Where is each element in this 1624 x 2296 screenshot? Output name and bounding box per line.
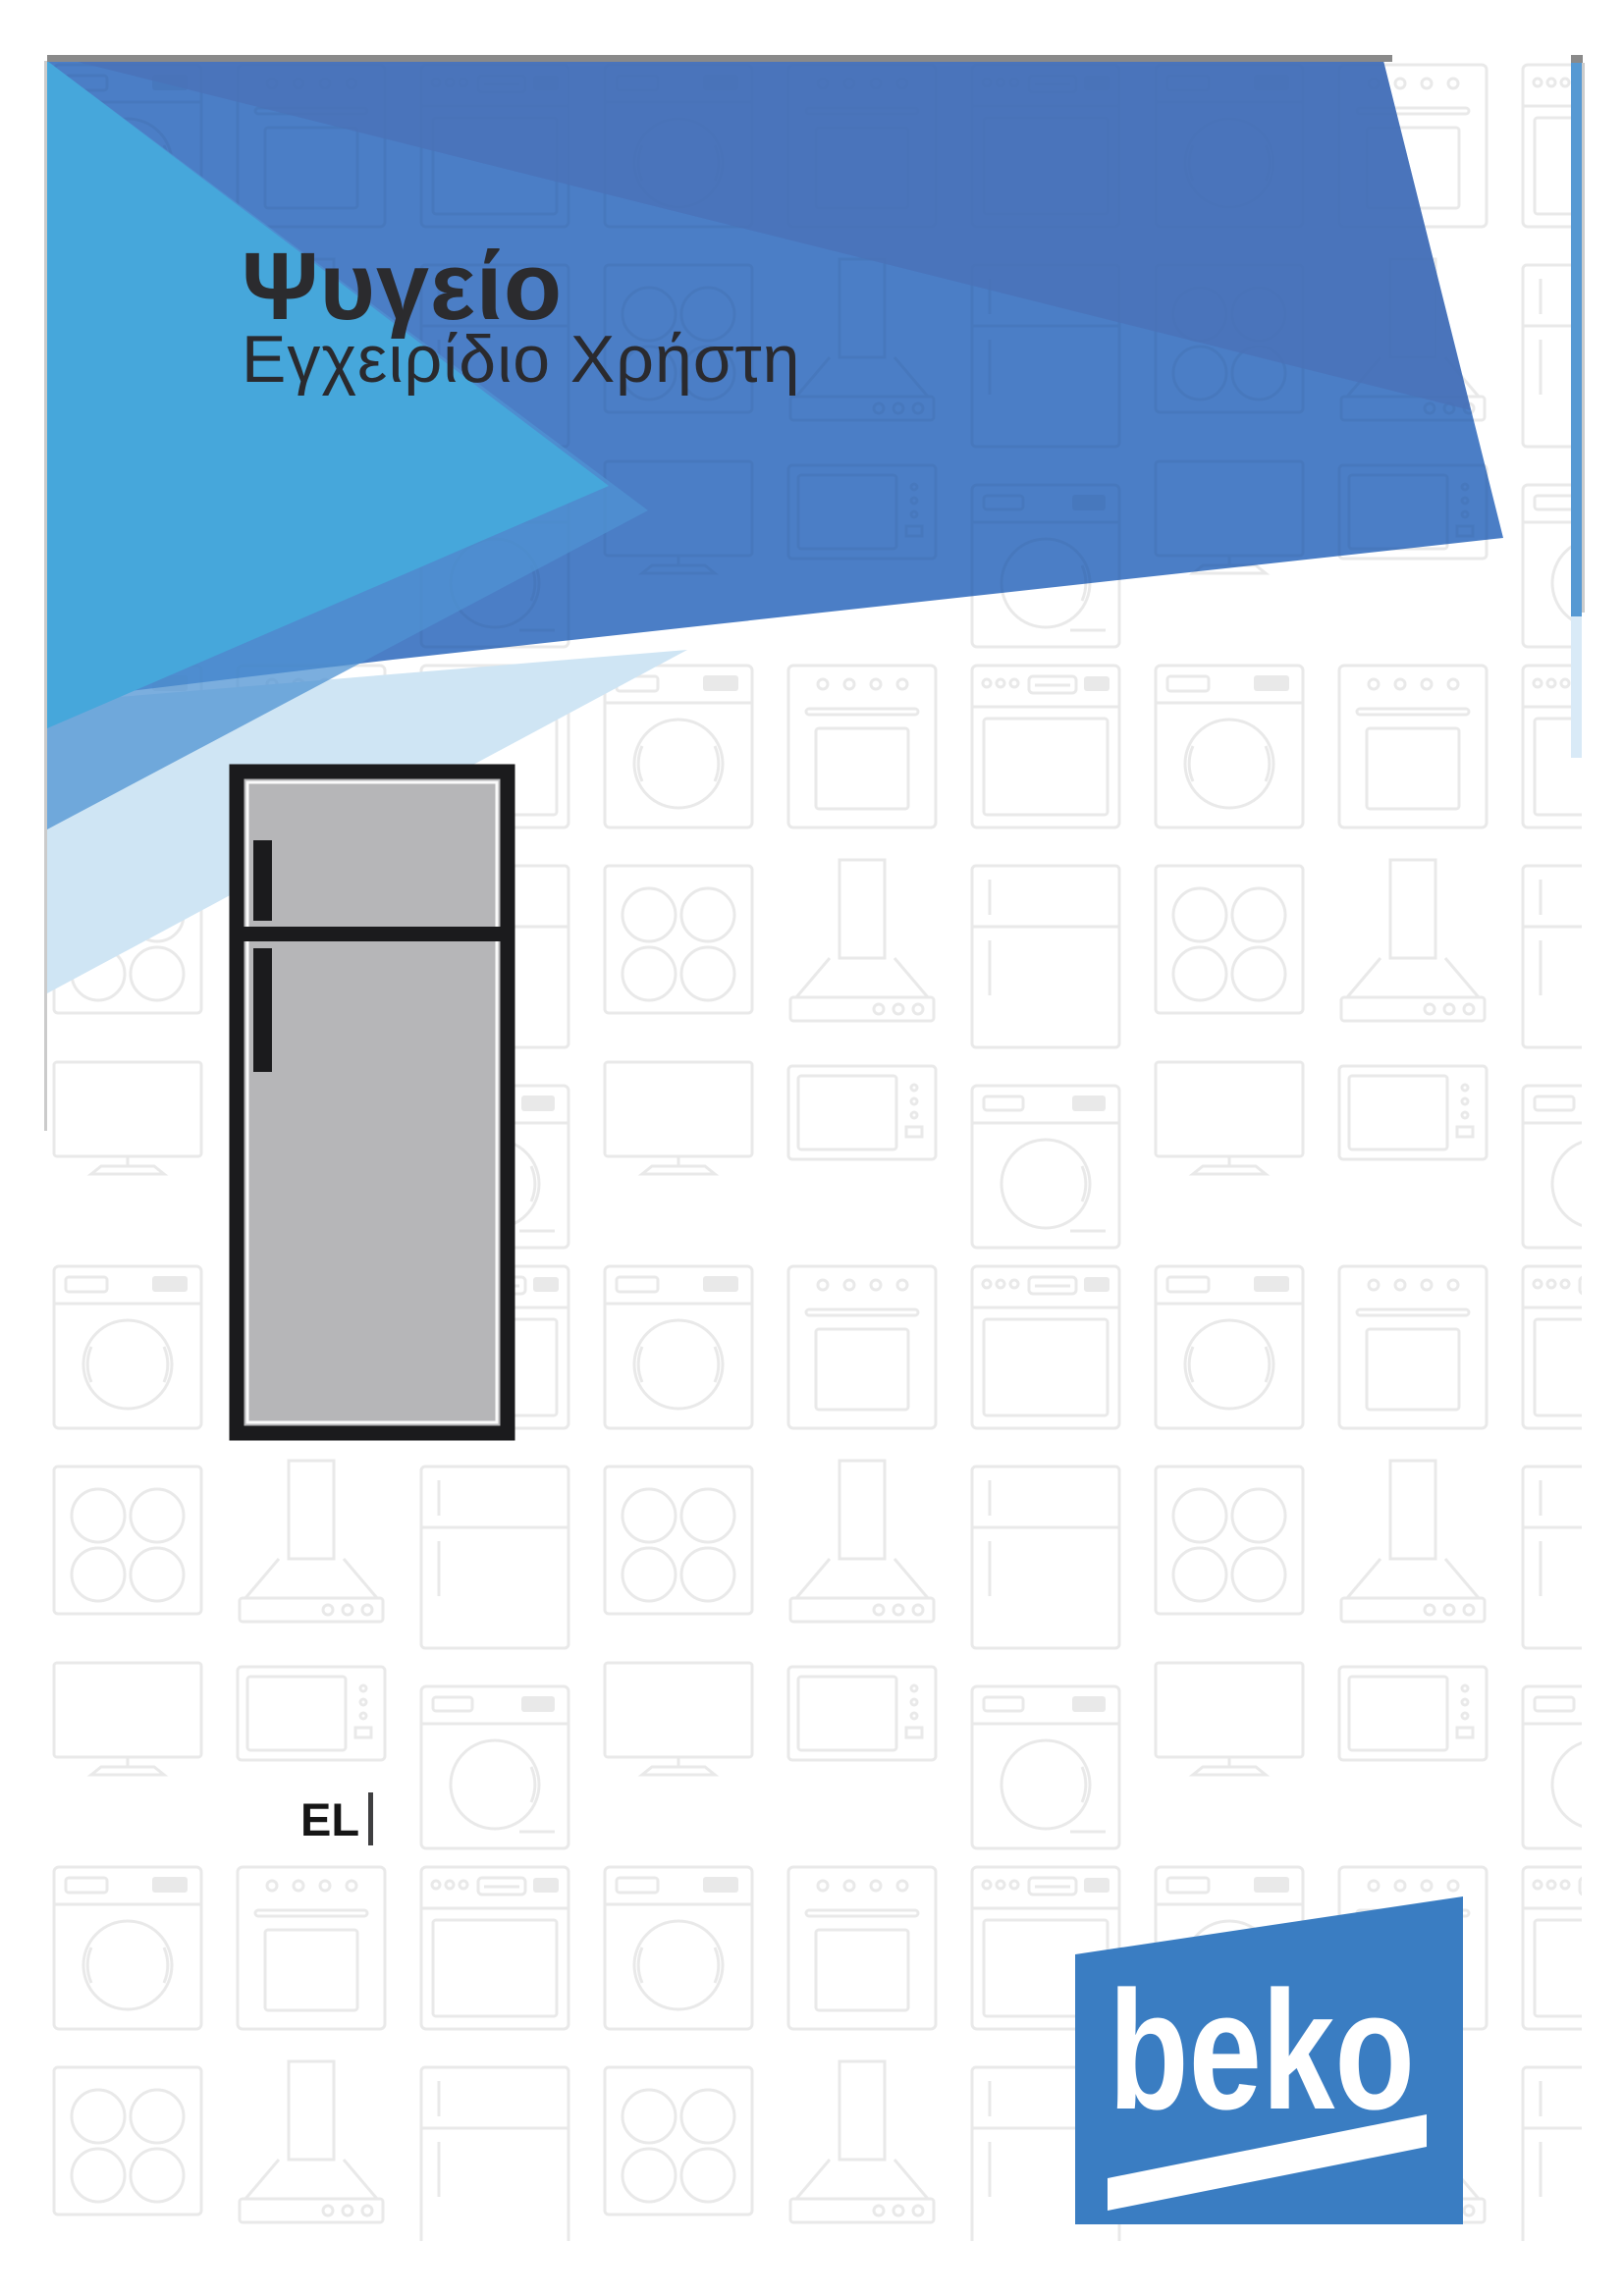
manual-cover-page: Ψυγείο Εγχειρίδιο Χρήστη EL beko (0, 0, 1624, 2296)
right-edge-strip-pale (1571, 616, 1582, 758)
page-left-edge-line (44, 61, 47, 1131)
refrigerator-illustration (229, 764, 515, 1441)
right-edge-strip-blue (1571, 63, 1582, 616)
freezer-door-handle (253, 840, 272, 921)
beko-logo: beko (1073, 1893, 1468, 2234)
beko-logo-graphic: beko (1073, 1893, 1468, 2234)
right-edge-shadow-line (1582, 63, 1585, 613)
fridge-door-divider (230, 927, 514, 941)
language-divider-bar (368, 1792, 373, 1845)
refrigerator-icon (229, 764, 515, 1441)
header-top-rule (47, 55, 1392, 62)
fridge-body (237, 772, 508, 1433)
right-edge-strip-cap (1571, 55, 1583, 63)
beko-logo-text: beko (1109, 1956, 1415, 2145)
language-code: EL (300, 1792, 359, 1847)
language-indicator: EL (300, 1792, 373, 1847)
fridge-door-handle (253, 948, 272, 1072)
page-subtitle: Εγχειρίδιο Χρήστη (242, 321, 800, 398)
page-title: Ψυγείο (242, 239, 563, 334)
